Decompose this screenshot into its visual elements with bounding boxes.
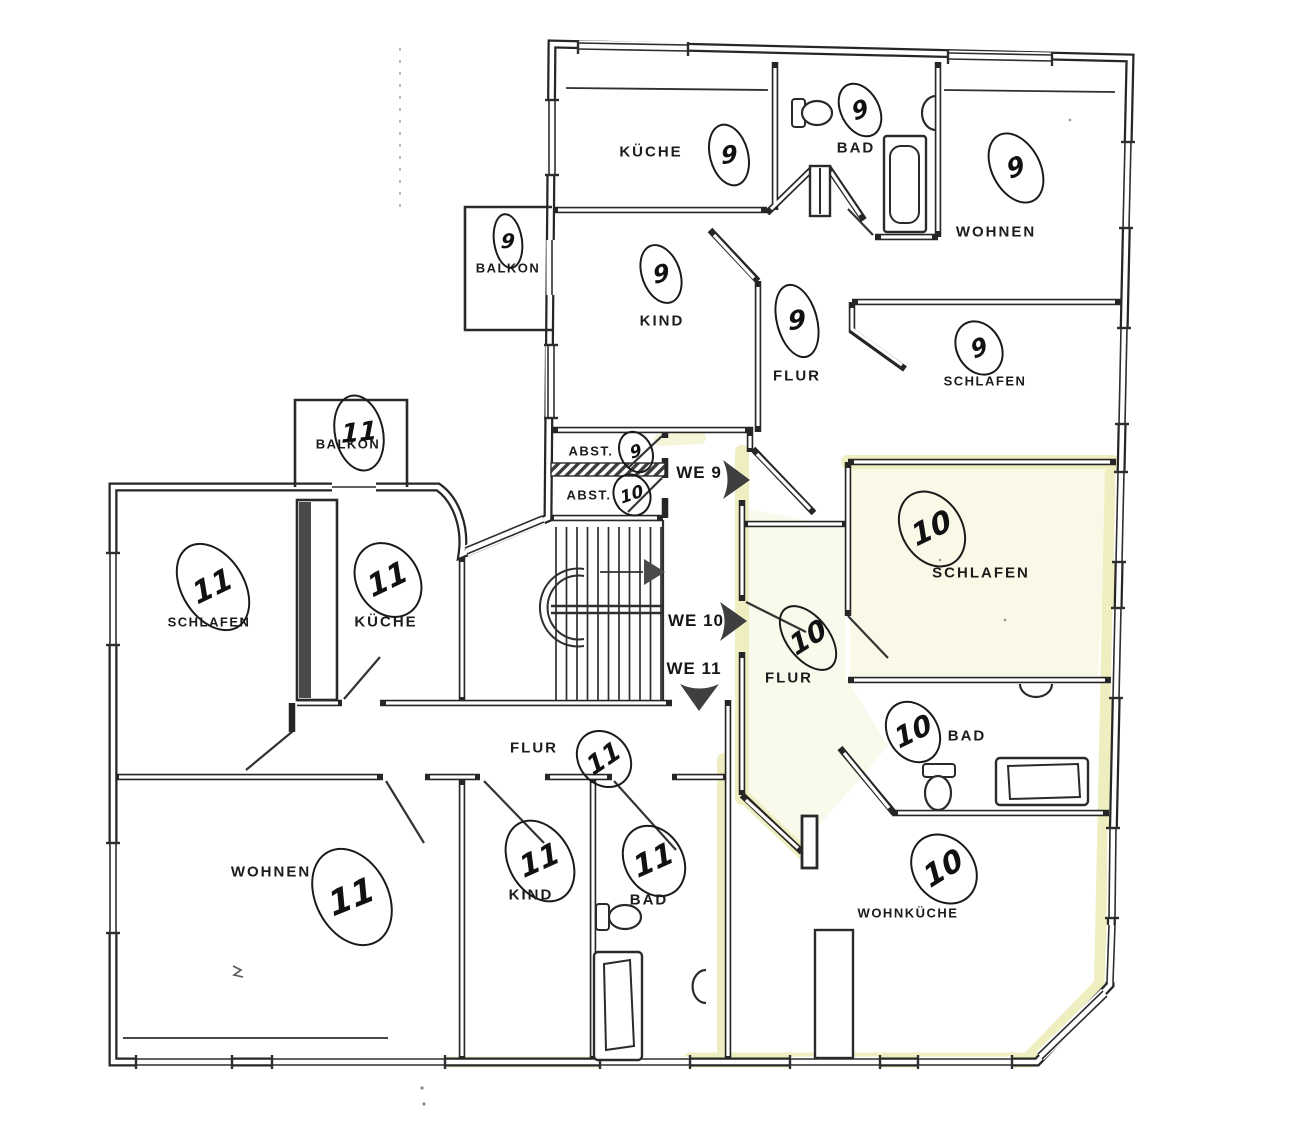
room-label-schlafen10: SCHLAFEN (932, 565, 1030, 582)
room-label-bad9: BAD (837, 140, 876, 157)
unit-label-we9: WE 9 (676, 463, 722, 483)
room-label-abst10: ABST. (566, 488, 611, 503)
room-label-kueche9: KÜCHE (619, 144, 682, 161)
room-label-flur10: FLUR (765, 670, 813, 687)
cabinet-wohnkueche (815, 930, 853, 1058)
room-label-wohnen9: WOHNEN (956, 224, 1036, 241)
unit-label-we10: WE 10 (668, 611, 724, 631)
sink-bad9 (922, 96, 936, 130)
room-label-flur9: FLUR (773, 368, 821, 385)
room-label-wohnkueche10: WOHNKÜCHE (858, 906, 959, 921)
bathtub-bad9 (884, 136, 926, 232)
room-label-wohnen11: WOHNEN (231, 864, 311, 881)
room-label-bad10: BAD (948, 728, 987, 745)
unit-label-we11: WE 11 (666, 659, 721, 679)
room-label-abst9: ABST. (568, 444, 613, 459)
bathtub-bad11 (594, 952, 642, 1060)
bathtub-bad10 (996, 758, 1088, 805)
marker-highlight (360, 438, 1112, 1062)
toilet-bad9 (792, 99, 832, 127)
chimney-flur9 (810, 166, 830, 216)
we11-direction-arrow (680, 684, 719, 711)
room-label-flur11: FLUR (510, 740, 558, 757)
sink-bad11 (693, 970, 706, 1003)
chimney-wohnkueche (802, 816, 817, 868)
duct-shaft (297, 500, 337, 700)
room-label-kind9: KIND (640, 313, 685, 330)
floor-plan-page: KÜCHE BAD WOHNEN BALKON KIND FLUR SCHLAF… (0, 0, 1314, 1121)
sink-bad10 (1020, 684, 1052, 697)
toilet-bad10 (923, 764, 955, 810)
staircase (540, 520, 665, 700)
